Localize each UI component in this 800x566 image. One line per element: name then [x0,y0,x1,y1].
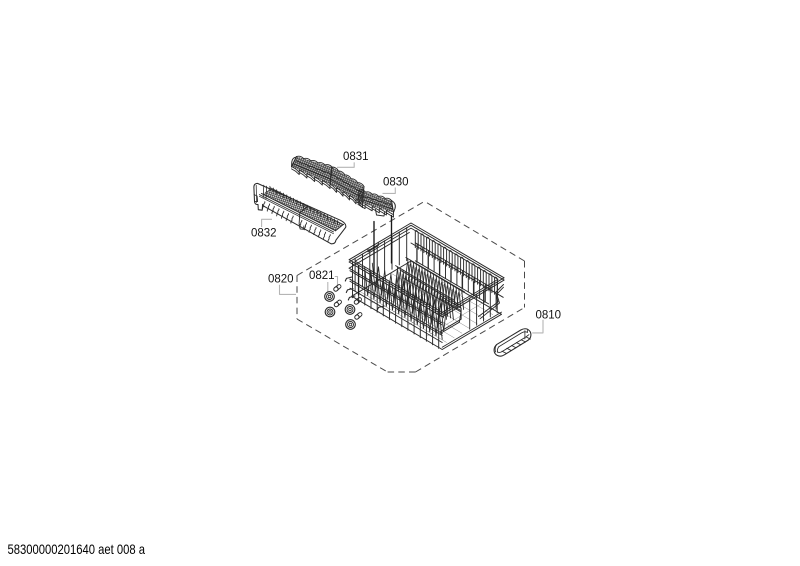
svg-text:0832: 0832 [251,228,277,240]
svg-text:0810: 0810 [536,310,562,322]
svg-text:0831: 0831 [343,151,369,163]
svg-text:58300000201640 aet 008 a: 58300000201640 aet 008 a [8,542,146,557]
svg-text:0821: 0821 [309,270,335,282]
svg-text:0830: 0830 [383,177,409,189]
svg-text:0820: 0820 [268,274,294,286]
